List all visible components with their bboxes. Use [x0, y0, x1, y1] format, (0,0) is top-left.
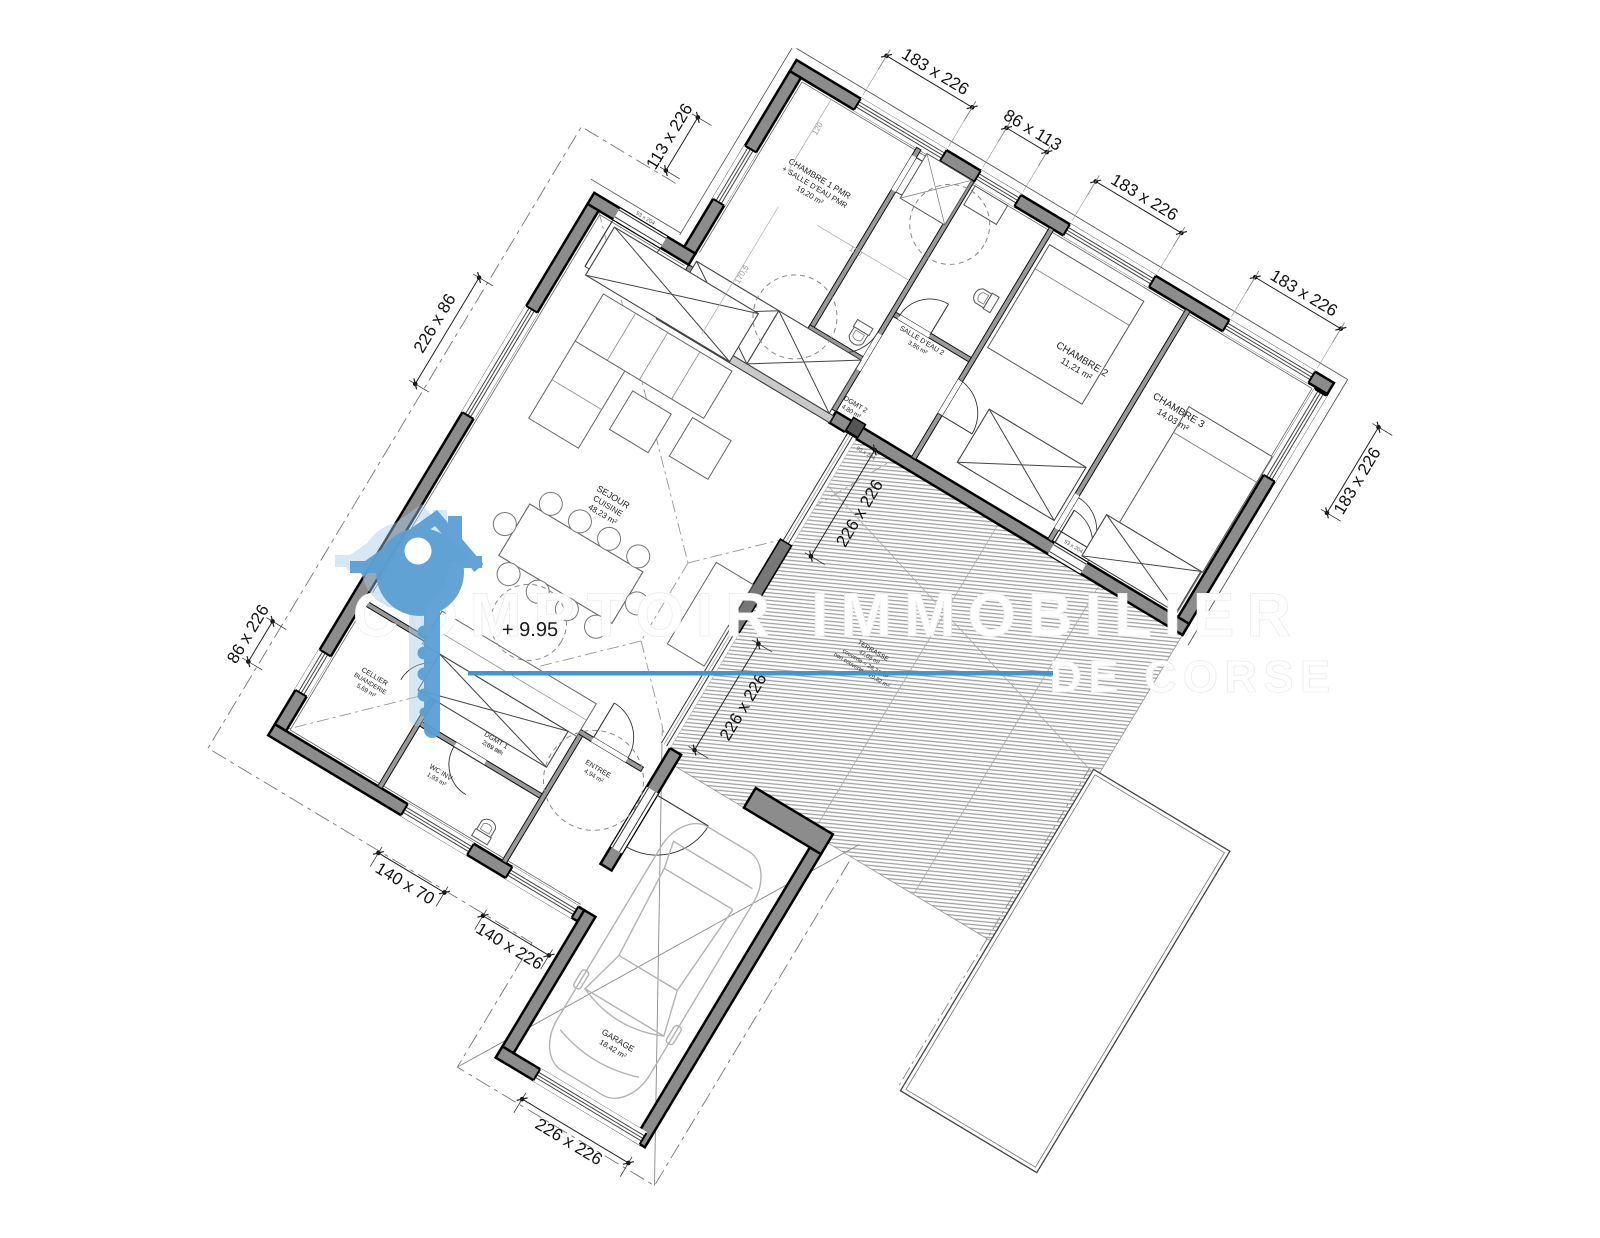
svg-text:COMPTOIR IMMOBILIER: COMPTOIR IMMOBILIER [353, 581, 1303, 650]
svg-text:DE CORSE: DE CORSE [1049, 651, 1336, 702]
svg-text:+ 9.95: + 9.95 [502, 619, 558, 641]
